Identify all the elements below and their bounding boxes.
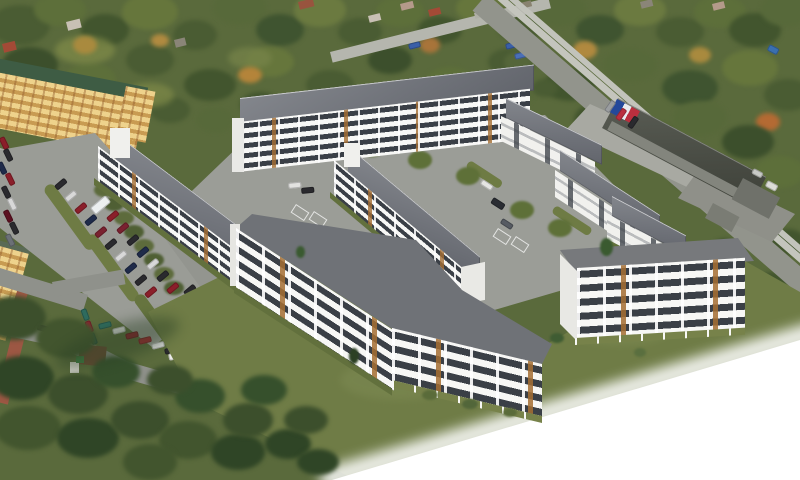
tree-canopy [147,365,193,395]
courtyard-tree [456,167,480,185]
tree-autumn [689,47,711,63]
courtyard-tree [548,219,572,237]
apartment-gable [232,118,244,172]
tree-canopy [297,449,339,475]
courtyard-tree [408,151,432,169]
tree-canopy [656,17,704,47]
tree-canopy [604,49,656,81]
tree-canopy [57,418,119,458]
tree-canopy [211,434,265,470]
tree-canopy [674,101,726,135]
grass-patch [228,47,272,69]
tree-autumn [151,34,169,47]
tree-canopy [123,444,177,480]
apartment-gable [344,143,360,167]
tree-canopy [184,69,236,101]
apartment-gable [110,128,130,158]
tree-canopy [284,406,328,434]
apartment-facade-right [577,258,745,340]
spruce-tree [349,348,359,364]
shrub [422,390,438,400]
tree-canopy [722,50,778,86]
courtyard-tree [510,201,534,219]
tree-canopy [241,375,287,405]
tree-canopy [223,403,273,437]
tree-canopy [662,70,718,106]
shrub [550,333,564,343]
tree-autumn [73,36,97,54]
tree-canopy [197,108,233,132]
tree-canopy [126,44,174,76]
tree-canopy [722,125,774,159]
tree-autumn [238,67,262,83]
spruce-tree [296,246,305,258]
aerial-render [0,0,800,480]
shrub [462,399,478,409]
shrub [503,408,517,417]
shrub [634,348,646,357]
spruce-tree [600,238,613,256]
